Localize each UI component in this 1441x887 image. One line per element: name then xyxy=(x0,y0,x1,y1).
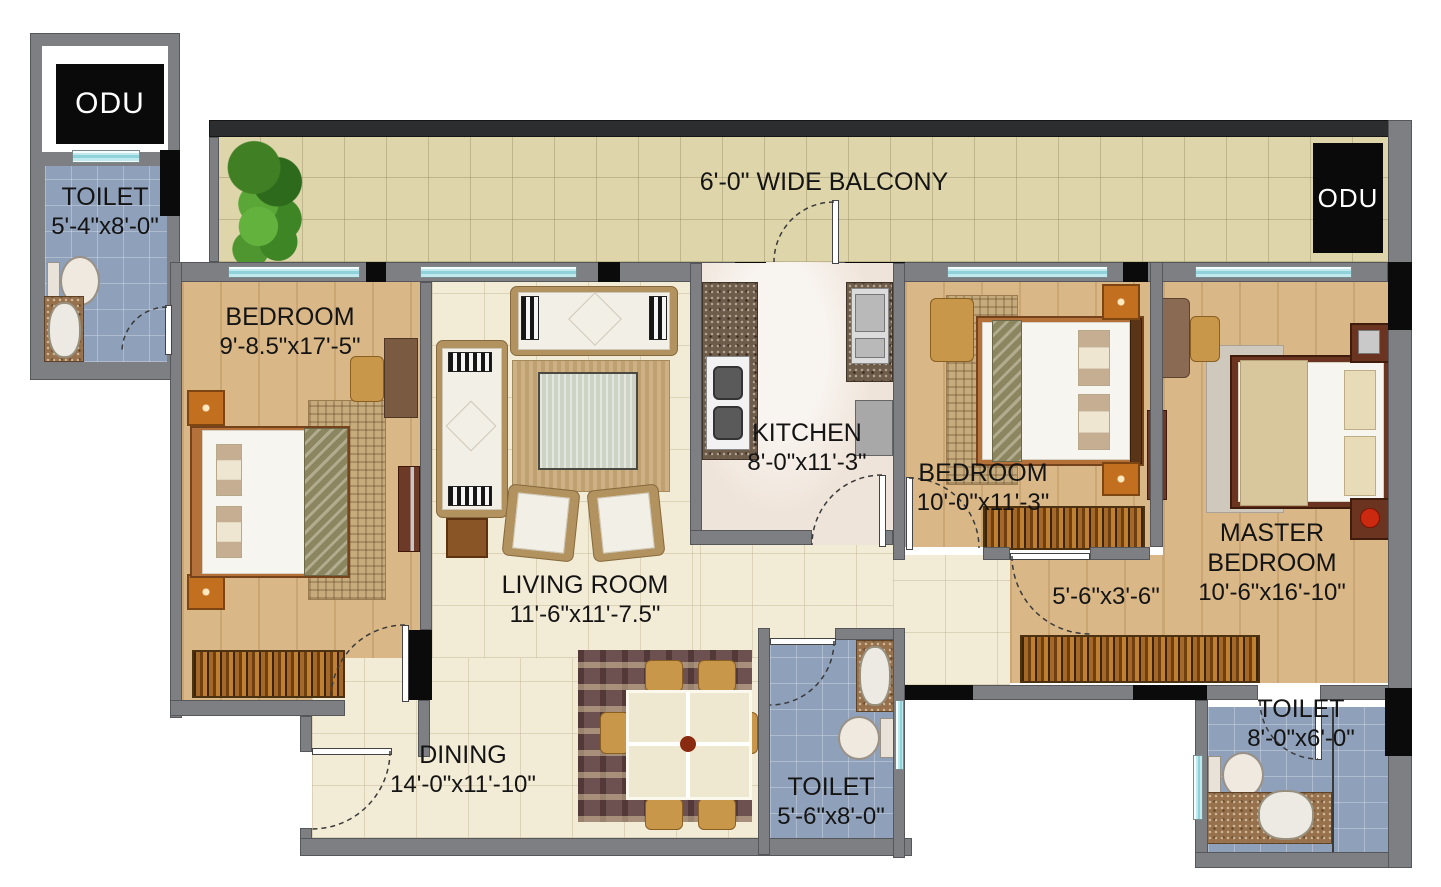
bedroom2-door-leaf xyxy=(906,477,913,550)
master-door-leaf xyxy=(1010,553,1090,560)
entry-door-leaf xyxy=(312,748,392,755)
passage-label: 5'-6"x3'-6" xyxy=(1052,582,1160,612)
balcony-door-leaf xyxy=(832,200,839,264)
kitchen-label: KITCHEN 8'-0"x11'-3" xyxy=(747,418,866,478)
bottom-outer-wall xyxy=(300,838,912,856)
kitchen-burner xyxy=(713,366,743,400)
kitchen-sink-drainer xyxy=(855,338,885,358)
bedroom1-door-leaf xyxy=(402,625,409,702)
bedroom1-pillow xyxy=(216,444,242,496)
bedroom2-master-wall xyxy=(1150,262,1163,547)
toilet2-wc-tank xyxy=(880,718,894,758)
toilet3-wc-tank xyxy=(1208,756,1221,794)
room-name: LIVING ROOM xyxy=(502,570,669,600)
dining-centerpiece xyxy=(680,736,696,752)
living-window xyxy=(420,266,577,278)
room-dims: 5'-6"x3'-6" xyxy=(1052,582,1160,612)
bedroom2-pillow xyxy=(1078,330,1110,386)
bedroom1-nightstand xyxy=(187,390,225,426)
bedroom1-blanket xyxy=(304,428,348,576)
kitchen-door-leaf xyxy=(879,475,886,547)
master-window xyxy=(1195,266,1352,278)
wall-post xyxy=(893,685,973,700)
master-pillow xyxy=(1344,370,1376,430)
room-name: MASTER xyxy=(1198,518,1346,548)
living-sofa-pillow xyxy=(448,352,492,372)
bedroom1-dresser xyxy=(398,466,420,552)
passage-wardrobe xyxy=(1020,635,1260,683)
bedroom1-chair xyxy=(350,356,384,402)
room-name: BEDROOM xyxy=(917,458,1050,488)
toilet3-window xyxy=(1193,755,1203,820)
bedroom2-window xyxy=(947,266,1108,278)
toilet2-wc-bowl xyxy=(838,716,880,760)
balcony-floor xyxy=(218,137,1388,262)
wall-post xyxy=(1133,685,1207,700)
balcony-left-wall xyxy=(209,137,219,262)
toilet3-bottom-wall xyxy=(1195,852,1412,868)
dining-chair xyxy=(698,660,736,692)
bedroom1-bench xyxy=(384,338,418,418)
bedroom2-bottom-wall xyxy=(1090,547,1150,560)
bedroom2-bottom-wall xyxy=(983,547,1010,560)
toilet1-label: TOILET 5'-4"x8'-0" xyxy=(51,182,159,242)
toilet2-window xyxy=(895,700,904,770)
odu-unit-left: ODU xyxy=(56,64,164,144)
toilet2-door-leaf xyxy=(770,638,836,645)
toilet2-sink xyxy=(859,646,891,706)
kitchen-burner xyxy=(713,406,743,440)
bedroom1-window xyxy=(228,266,360,278)
wall-post xyxy=(406,630,432,700)
room-dims: 5'-6"x8'-0" xyxy=(777,802,885,832)
room-name: TOILET xyxy=(777,772,885,802)
room-dims: 9'-8.5"x17'-5" xyxy=(220,332,361,362)
bedroom1-nightstand xyxy=(187,574,225,610)
balcony-label: 6'-0" WIDE BALCONY xyxy=(700,167,948,197)
dining-chair xyxy=(698,798,736,830)
toilet1-wall-post xyxy=(160,150,180,216)
bedroom2-pillow xyxy=(1078,394,1110,450)
kitchen-right-wall xyxy=(893,263,905,560)
master-pillow xyxy=(1344,436,1376,496)
living-side-table xyxy=(446,518,488,558)
toilet1-door-leaf xyxy=(165,305,172,355)
master-label: MASTER BEDROOM 10'-6"x16'-10" xyxy=(1198,518,1346,608)
toilet2-left-wall xyxy=(758,628,770,855)
living-sofa-pillow xyxy=(448,486,492,506)
room-dims: 8'-0"x6'-0" xyxy=(1247,724,1355,754)
bedroom2-headboard xyxy=(1130,318,1142,464)
room-name: TOILET xyxy=(51,182,159,212)
toilet1-sink xyxy=(48,302,81,358)
living-label: LIVING ROOM 11'-6"x11'-7.5" xyxy=(502,570,669,630)
kitchen-bottom-wall xyxy=(690,530,812,545)
dining-chair xyxy=(645,798,683,830)
hall-floor-2 xyxy=(893,555,1010,685)
wall-post xyxy=(1388,262,1412,330)
toilet1-wc-tank xyxy=(47,262,60,300)
master-chaise xyxy=(1190,316,1220,362)
living-armchair-cushion xyxy=(597,492,655,553)
room-name: KITCHEN xyxy=(747,418,866,448)
bedroom2-blanket xyxy=(992,320,1022,462)
living-sofa-pillow xyxy=(521,296,539,340)
master-blanket xyxy=(1240,360,1308,506)
kitchen-left-wall xyxy=(690,263,702,545)
odu-left-label: ODU xyxy=(75,87,145,121)
room-dims: 14'-0"x11'-10" xyxy=(390,770,536,800)
plant-icon xyxy=(228,196,304,272)
toilet1-window xyxy=(72,150,140,163)
room-name: 6'-0" WIDE BALCONY xyxy=(700,167,948,197)
toilet2-label: TOILET 5'-6"x8'-0" xyxy=(777,772,885,832)
floor-plan: ODU ODU TOILET 5'-4"x8'-0" 6'-0" WIDE BA… xyxy=(0,0,1441,887)
room-dims: 8'-0"x11'-3" xyxy=(747,448,866,478)
bedroom2-lounge-chair xyxy=(930,298,974,362)
balcony-outer-wall xyxy=(209,120,1400,137)
bedroom2-nightstand xyxy=(1102,462,1140,496)
bedroom1-pillow xyxy=(216,506,242,558)
wall-post xyxy=(1385,688,1412,756)
master-lamp xyxy=(1358,330,1380,354)
dining-chair xyxy=(645,660,683,692)
kitchen-sink-basin xyxy=(855,294,885,332)
room-name: DINING xyxy=(390,740,536,770)
living-sofa-pillow xyxy=(649,296,667,340)
dining-label: DINING 14'-0"x11'-10" xyxy=(390,740,536,800)
room-name: BEDROOM xyxy=(220,302,361,332)
toilet3-label: TOILET 8'-0"x6'-0" xyxy=(1247,694,1355,754)
room-dims: 10'-0"x11'-3" xyxy=(917,488,1050,518)
bedroom1-label: BEDROOM 9'-8.5"x17'-5" xyxy=(220,302,361,362)
master-lamp-red xyxy=(1360,508,1380,528)
room-name: TOILET xyxy=(1247,694,1355,724)
bedroom1-bottom-wall xyxy=(170,700,345,716)
bedroom1-wardrobe xyxy=(192,650,345,698)
living-coffee-table xyxy=(538,372,638,470)
bedroom1-right-wall xyxy=(420,282,432,630)
dining-left-wall xyxy=(300,716,312,752)
bedroom2-nightstand xyxy=(1102,284,1140,320)
room-dims: 10'-6"x16'-10" xyxy=(1198,578,1346,608)
toilet3-sink xyxy=(1258,790,1314,840)
bedroom2-label: BEDROOM 10'-0"x11'-3" xyxy=(917,458,1050,518)
odu-unit-right: ODU xyxy=(1313,143,1383,253)
living-armchair-cushion xyxy=(512,492,570,553)
room-name: BEDROOM xyxy=(1198,548,1346,578)
room-dims: 11'-6"x11'-7.5" xyxy=(502,600,669,630)
room-dims: 5'-4"x8'-0" xyxy=(51,212,159,242)
odu-right-label: ODU xyxy=(1318,183,1379,214)
